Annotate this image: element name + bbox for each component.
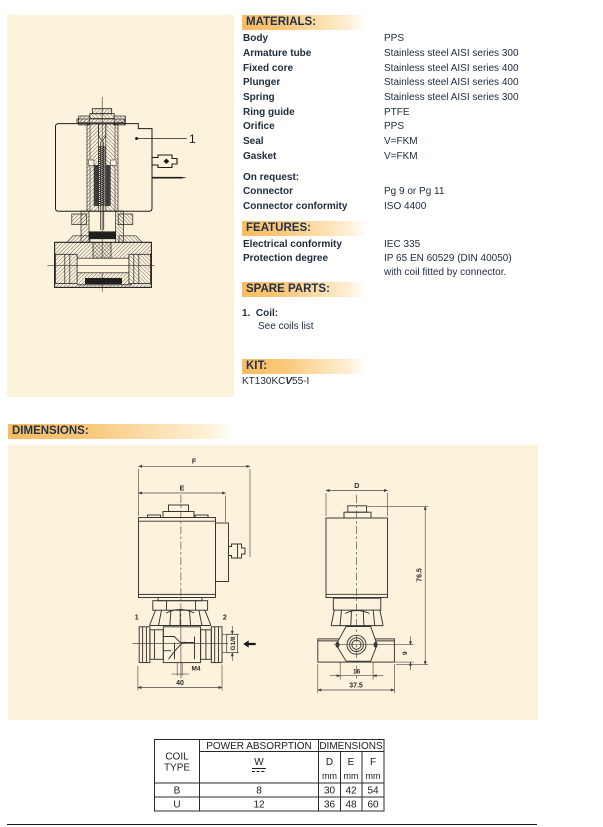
svg-text:54: 54: [367, 785, 379, 796]
svg-text:U: U: [173, 799, 180, 810]
svg-text:E: E: [179, 485, 184, 492]
svg-text:mm: mm: [322, 771, 337, 781]
svg-text:2: 2: [222, 615, 226, 622]
svg-text:COIL: COIL: [165, 751, 189, 762]
svg-text:mm: mm: [366, 771, 381, 781]
svg-text:16: 16: [352, 669, 360, 676]
svg-text:37.5: 37.5: [349, 683, 363, 690]
svg-text:POWER ABSORPTION: POWER ABSORPTION: [206, 741, 312, 752]
svg-text:48: 48: [345, 799, 357, 810]
svg-text:DIMENSIONS: DIMENSIONS: [319, 741, 383, 752]
svg-text:G1/8: G1/8: [230, 636, 237, 650]
svg-text:42: 42: [345, 785, 357, 796]
svg-text:1: 1: [189, 132, 196, 146]
svg-text:8: 8: [256, 785, 262, 796]
svg-text:D: D: [354, 483, 359, 490]
svg-text:F: F: [191, 459, 196, 466]
svg-text:TYPE: TYPE: [164, 762, 190, 773]
svg-text:36: 36: [324, 799, 336, 810]
svg-text:mm: mm: [344, 771, 359, 781]
svg-text:D: D: [326, 757, 333, 768]
svg-text:W: W: [254, 757, 264, 768]
svg-text:12: 12: [253, 799, 265, 810]
svg-text:40: 40: [176, 680, 184, 687]
svg-text:F: F: [370, 757, 376, 768]
svg-text:M4: M4: [191, 666, 200, 673]
svg-text:9: 9: [401, 651, 408, 655]
svg-text:76.5: 76.5: [416, 568, 423, 582]
svg-text:E: E: [348, 757, 355, 768]
svg-text:1: 1: [134, 615, 138, 622]
svg-text:60: 60: [367, 799, 379, 810]
svg-text:30: 30: [324, 785, 336, 796]
svg-text:B: B: [174, 785, 181, 796]
